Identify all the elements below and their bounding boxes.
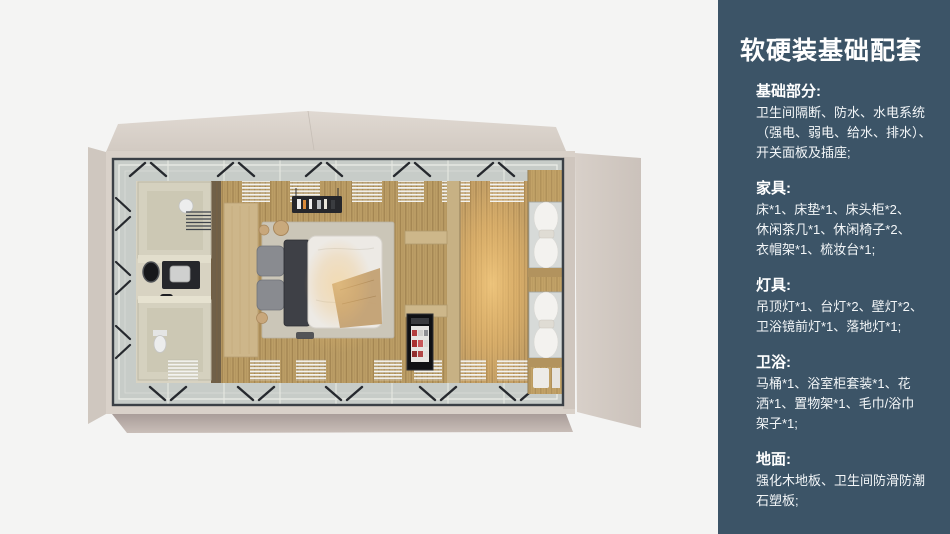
info-panel: 软硬装基础配套 基础部分: 卫生间隔断、防水、水电系统 （强电、弱电、给水、排水… bbox=[718, 0, 950, 534]
section-lighting-title: 灯具: bbox=[756, 276, 932, 295]
section-furniture-line: 休闲茶几*1、休闲椅子*2、 bbox=[756, 220, 932, 240]
floorplan-illustration bbox=[0, 0, 718, 534]
section-flooring-title: 地面: bbox=[756, 450, 932, 469]
wardrobe-plank bbox=[224, 203, 258, 357]
section-flooring-line: 石塑板; bbox=[756, 491, 932, 511]
pillow bbox=[257, 280, 284, 310]
section-bathroom-line: 洒*1、置物架*1、毛巾/浴巾 bbox=[756, 394, 932, 414]
section-basics: 基础部分: 卫生间隔断、防水、水电系统 （强电、弱电、给水、排水）、 开关面板及… bbox=[756, 82, 932, 163]
wall-shelf bbox=[405, 231, 447, 244]
section-basics-line: （强电、弱电、给水、排水）、 bbox=[756, 123, 932, 143]
section-furniture-line: 床*1、床垫*1、床头柜*2、 bbox=[756, 200, 932, 220]
section-bathroom-line: 马桶*1、浴室柜套装*1、花 bbox=[756, 374, 932, 394]
section-lighting-line: 卫浴镜前灯*1、落地灯*1; bbox=[756, 317, 932, 337]
shower-head bbox=[179, 199, 193, 213]
pouf bbox=[257, 313, 268, 324]
section-furniture-title: 家具: bbox=[756, 179, 932, 198]
section-basics-title: 基础部分: bbox=[756, 82, 932, 101]
section-furniture-line: 衣帽架*1、梳妆台*1; bbox=[756, 240, 932, 260]
section-furniture: 家具: 床*1、床垫*1、床头柜*2、 休闲茶几*1、休闲椅子*2、 衣帽架*1… bbox=[756, 179, 932, 260]
pillow bbox=[257, 246, 284, 276]
section-bathroom-title: 卫浴: bbox=[756, 353, 932, 372]
pendant-lamp bbox=[274, 221, 289, 236]
minibar-cabinet bbox=[407, 314, 433, 370]
section-flooring: 地面: 强化木地板、卫生间防滑防潮 石塑板; bbox=[756, 450, 932, 511]
slide: 软硬装基础配套 基础部分: 卫生间隔断、防水、水电系统 （强电、弱电、给水、排水… bbox=[0, 0, 950, 534]
section-bathroom: 卫浴: 马桶*1、浴室柜套装*1、花 洒*1、置物架*1、毛巾/浴巾 架子*1; bbox=[756, 353, 932, 434]
section-basics-line: 卫生间隔断、防水、水电系统 bbox=[756, 103, 932, 123]
window-wall bbox=[528, 170, 563, 394]
section-flooring-line: 强化木地板、卫生间防滑防潮 bbox=[756, 471, 932, 491]
basket bbox=[259, 225, 269, 235]
room-interior bbox=[136, 181, 536, 384]
vanity-mirror bbox=[143, 262, 159, 282]
section-lighting-line: 吊顶灯*1、台灯*2、壁灯*2、 bbox=[756, 297, 932, 317]
sink bbox=[170, 266, 190, 282]
room-render bbox=[0, 0, 718, 534]
panel-title: 软硬装基础配套 bbox=[740, 36, 932, 66]
section-lighting: 灯具: 吊顶灯*1、台灯*2、壁灯*2、 卫浴镜前灯*1、落地灯*1; bbox=[756, 276, 932, 337]
section-basics-line: 开关面板及插座; bbox=[756, 143, 932, 163]
toilet bbox=[154, 336, 166, 353]
towels bbox=[533, 368, 549, 388]
right-wall-top bbox=[563, 157, 575, 409]
section-bathroom-line: 架子*1; bbox=[756, 414, 932, 434]
